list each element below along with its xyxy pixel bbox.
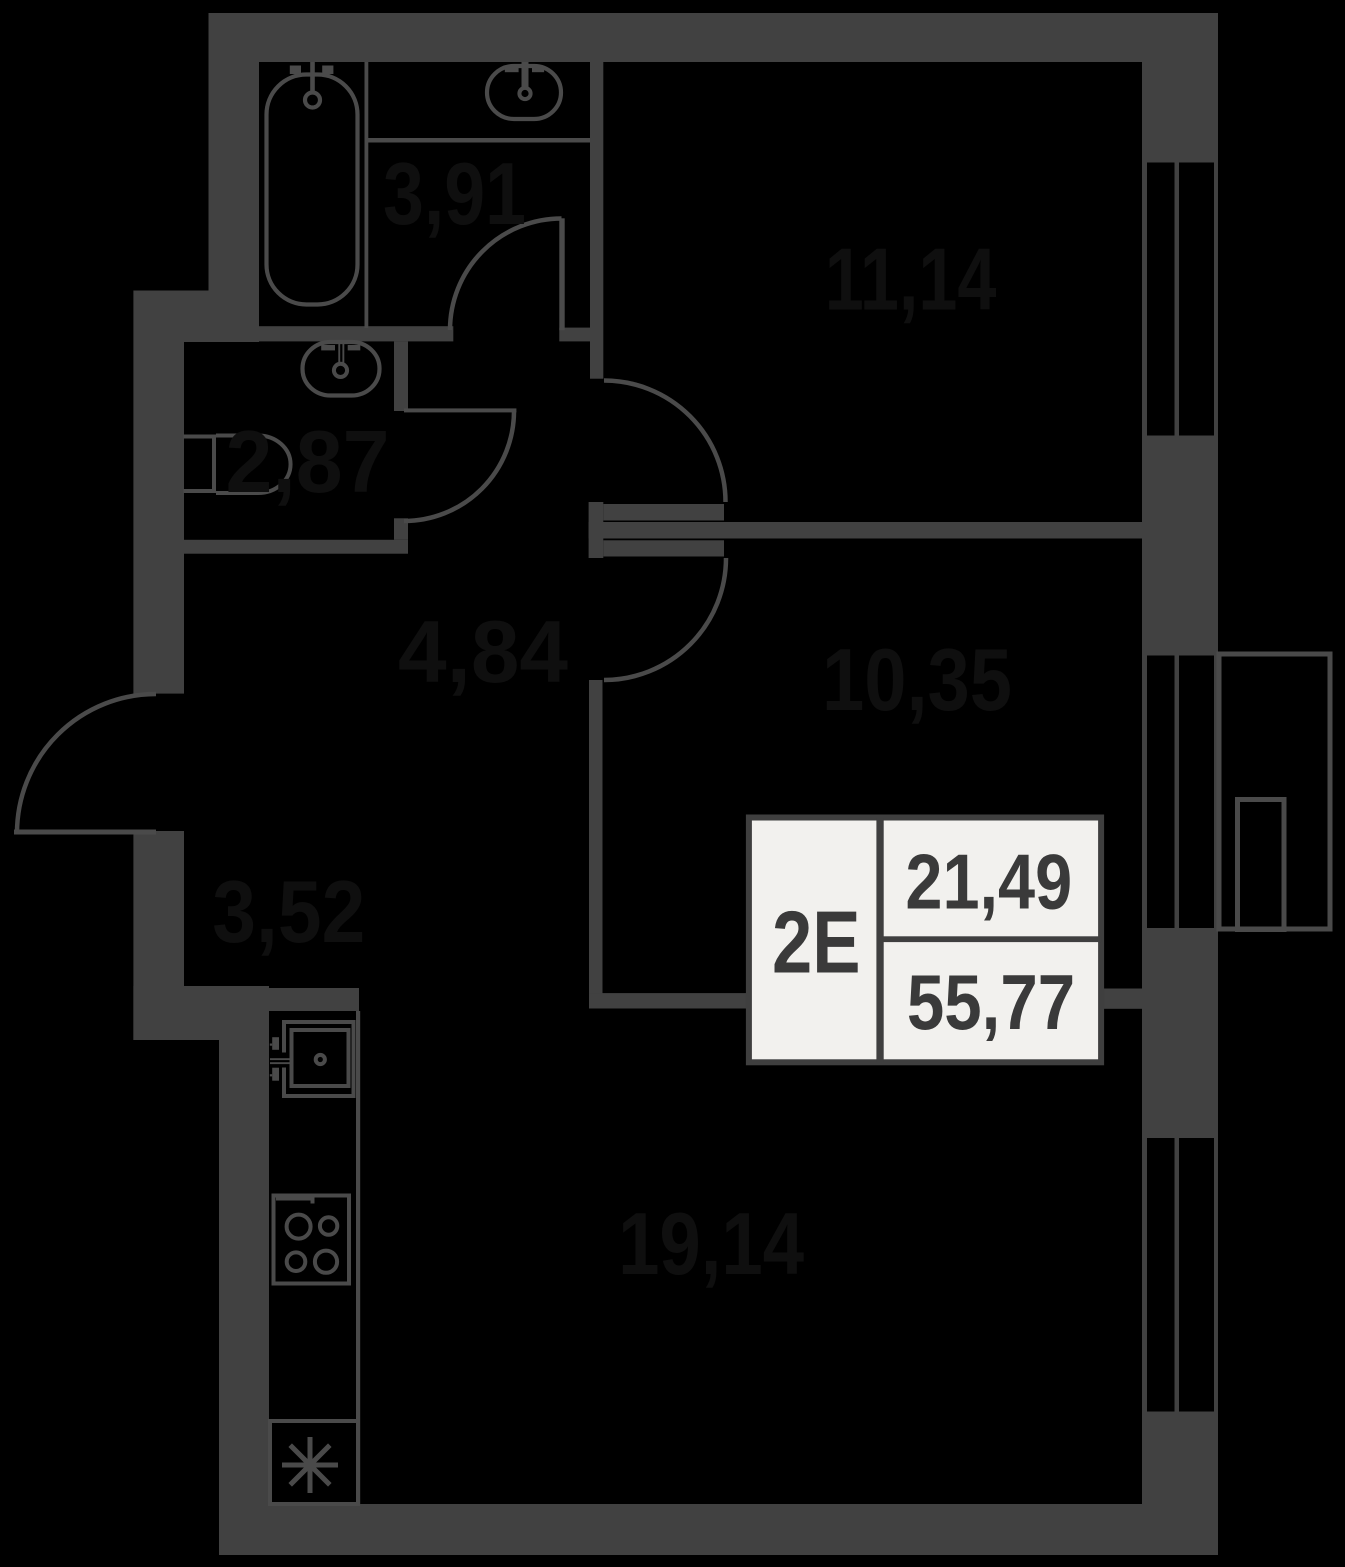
svg-text:19,14: 19,14 bbox=[618, 1194, 804, 1293]
svg-text:3,91: 3,91 bbox=[383, 144, 526, 243]
svg-text:3,52: 3,52 bbox=[212, 862, 365, 961]
svg-text:4,84: 4,84 bbox=[398, 602, 568, 701]
svg-text:11,14: 11,14 bbox=[825, 230, 997, 329]
svg-text:55,77: 55,77 bbox=[907, 958, 1075, 1046]
svg-text:2,87: 2,87 bbox=[226, 412, 390, 511]
svg-text:10,35: 10,35 bbox=[822, 630, 1012, 729]
svg-text:21,49: 21,49 bbox=[905, 838, 1072, 926]
svg-text:2E: 2E bbox=[772, 893, 861, 992]
